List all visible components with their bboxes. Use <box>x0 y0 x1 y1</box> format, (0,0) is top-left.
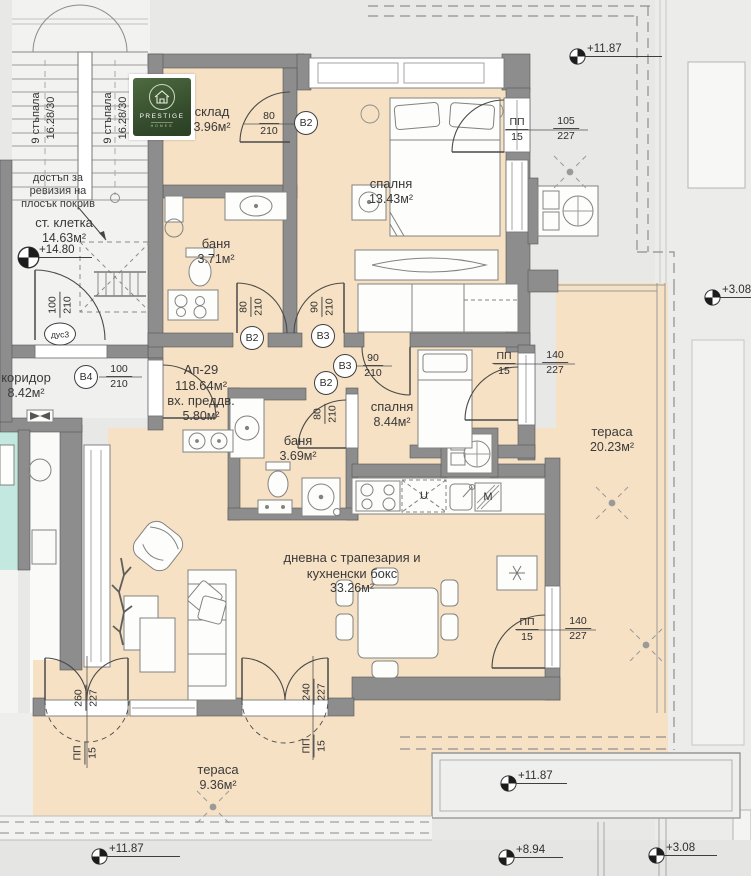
room-label-bath1: баня 3.71м² <box>197 236 234 267</box>
dim-corridor-door: 100 210 <box>106 363 132 390</box>
house-icon <box>149 84 175 110</box>
dim-type2: 15 <box>315 734 328 757</box>
level-value: +11.87 <box>587 43 622 55</box>
dim-terrace-door-right: 240 227 <box>300 679 327 705</box>
kitchen-counter <box>352 478 545 514</box>
dim-height: 227 <box>542 363 568 376</box>
dim-width: 240 <box>300 679 314 705</box>
door-tag-stair: дус3 <box>44 323 76 346</box>
dim-type2: 15 <box>505 130 528 143</box>
ac-outdoor-unit <box>538 186 598 236</box>
room-name: тераса <box>197 762 238 778</box>
dim-width: 90 <box>363 352 383 366</box>
apartment-area: 118.64м² <box>167 378 235 394</box>
fridge <box>497 556 537 590</box>
door-tag-bedroom2: В3 <box>333 354 357 378</box>
room-area: 3.69м² <box>279 449 316 464</box>
dim-living-terrace-pp: ПП 15 <box>515 616 538 643</box>
apartment-id: Ап-29 <box>167 362 235 378</box>
room-label-bath2: баня 3.69м² <box>279 433 316 464</box>
note-line: ревизия на <box>21 185 95 198</box>
dim-height: 210 <box>363 366 383 379</box>
dim-height: 210 <box>106 377 132 390</box>
room-area: 8.44м² <box>371 415 414 430</box>
room-label-living: дневна с трапезария и кухненски бокс 33.… <box>283 550 420 596</box>
room-area: 13.43м² <box>369 192 413 207</box>
room-name: кухненски бокс <box>283 566 420 582</box>
level-symbol-icon <box>91 848 108 865</box>
level-marker-terrace-mid: +11.87 <box>509 770 567 784</box>
level-symbol-icon <box>500 775 517 792</box>
level-value: +11.87 <box>518 770 553 782</box>
door-tag-sklad: В2 <box>294 111 318 135</box>
level-symbol-icon <box>569 48 586 65</box>
logo-sub-text: HOMES <box>151 122 174 128</box>
room-name: ст. клетка <box>35 215 93 231</box>
level-marker-bottom-right: +3.08 <box>657 842 717 856</box>
level-value: +14.80 <box>39 244 75 256</box>
dim-stair-door: 100 210 <box>46 292 73 318</box>
level-marker-stairwell: +14.80 <box>30 244 92 258</box>
dim-type: ПП <box>505 116 528 130</box>
room-area: 33.26м² <box>283 581 420 596</box>
level-value: +8.94 <box>516 844 545 856</box>
note-line: достъп за <box>21 172 95 185</box>
room-label-bedroom1: спалня 13.43м² <box>369 176 413 207</box>
dim-hall-door: 90 210 <box>308 297 335 317</box>
dim-width: 260 <box>72 685 86 711</box>
dim-height: 210 <box>323 297 336 317</box>
dim-height: 227 <box>87 685 100 711</box>
flight-size: 16.28/30 <box>116 92 131 143</box>
dim-type: ПП <box>300 734 314 757</box>
dim-height: 227 <box>565 629 591 642</box>
dim-type2: 15 <box>492 364 515 377</box>
dim-width: 140 <box>565 615 591 629</box>
level-symbol-icon <box>17 246 40 269</box>
level-marker-bottom-low: +8.94 <box>507 844 563 858</box>
room-name: баня <box>279 433 316 449</box>
room-name: вх. преддв. <box>167 393 235 409</box>
dim-width: 105 <box>553 115 579 129</box>
room-name: спалня <box>369 176 413 192</box>
level-value: +3.08 <box>722 284 751 296</box>
roof-access-note: достъп за ревизия на плосък покрив <box>21 172 95 212</box>
dishwasher-label: U <box>420 490 428 502</box>
dim-type2: 15 <box>86 741 99 764</box>
stair-flight-label-left: 9 стъпала 16.28/30 <box>29 92 59 143</box>
level-value: +3.08 <box>666 842 695 854</box>
dim-bedroom2-terrace-pp: ПП 15 <box>492 350 515 377</box>
level-symbol-icon <box>498 849 515 866</box>
dim-terrace-door-left-pp: ПП 15 <box>71 741 98 764</box>
dim-bedroom1-terrace: 105 227 <box>553 115 579 142</box>
level-value: +11.87 <box>109 843 144 855</box>
flight-count: 9 стъпала <box>29 92 44 143</box>
entry-cabinet <box>183 430 233 452</box>
room-name: коридор <box>1 370 51 386</box>
level-marker-right-edge: +3.08 <box>713 284 751 298</box>
room-name: тераса <box>590 424 634 440</box>
level-symbol-icon <box>704 289 721 306</box>
dim-width: 140 <box>542 349 568 363</box>
dim-sklad-door: 80 210 <box>259 110 279 137</box>
stair-flight-label-right: 9 стъпала 16.28/30 <box>101 92 131 143</box>
dim-height: 210 <box>252 297 265 317</box>
logo-brand-text: PRESTIGE <box>140 113 185 120</box>
dim-living-terrace: 140 227 <box>565 615 591 642</box>
room-area: 3.96м² <box>193 120 230 135</box>
dim-type: ПП <box>492 350 515 364</box>
room-label-terrace-bottom: тераса 9.36м² <box>197 762 238 793</box>
dim-height: 210 <box>61 292 74 318</box>
dim-type2: 15 <box>515 630 538 643</box>
dim-height: 227 <box>553 129 579 142</box>
room-name: спалня <box>371 399 414 415</box>
dim-height: 210 <box>259 124 279 137</box>
note-line: плосък покрив <box>21 198 95 211</box>
room-label-terrace-right: тераса 20.23м² <box>590 424 634 455</box>
dim-width: 80 <box>237 297 251 317</box>
room-area: 3.71м² <box>197 252 234 267</box>
door-tag-corridor: В4 <box>74 365 98 389</box>
room-area: 8.42м² <box>1 386 51 401</box>
dim-width: 90 <box>308 297 322 317</box>
sink-unit-label: М <box>483 491 492 503</box>
room-name: дневна с трапезария и <box>283 550 420 566</box>
dim-width: 100 <box>106 363 132 377</box>
dim-width: 100 <box>46 292 60 318</box>
room-name: склад <box>193 104 230 120</box>
room-label-entry: Ап-29 118.64м² вх. преддв. 5.80м² <box>167 362 235 424</box>
level-marker-bottom-left: +11.87 <box>100 843 180 857</box>
prestige-logo: PRESTIGE HOMES <box>129 74 195 140</box>
dim-height: 227 <box>315 679 328 705</box>
room-area: 5.80м² <box>167 409 235 424</box>
dim-bath1-door: 80 210 <box>237 297 264 317</box>
floor-plan: PRESTIGE HOMES склад 3.96м² спалня 13.43… <box>0 0 751 876</box>
flight-size: 16.28/30 <box>44 92 59 143</box>
dim-bath2-door: 80 210 <box>311 404 338 424</box>
prestige-logo-card: PRESTIGE HOMES <box>133 78 191 136</box>
bedroom2-furniture <box>418 350 472 448</box>
dim-terrace-door-right-pp: ПП 15 <box>300 734 327 757</box>
room-name: баня <box>197 236 234 252</box>
level-marker-roof-top: +11.87 <box>578 43 662 57</box>
room-label-corridor: коридор 8.42м² <box>1 370 51 401</box>
room-label-bedroom2: спалня 8.44м² <box>371 399 414 430</box>
door-tag-bath1: В2 <box>240 326 264 350</box>
door-tag-bath2: В2 <box>314 371 338 395</box>
room-area: 9.36м² <box>197 778 238 793</box>
dim-bedroom2-terrace: 140 227 <box>542 349 568 376</box>
dim-width: 80 <box>311 404 325 424</box>
room-label-sklad: склад 3.96м² <box>193 104 230 135</box>
dim-width: 80 <box>259 110 279 124</box>
room-area: 20.23м² <box>590 440 634 455</box>
dim-height: 210 <box>326 404 339 424</box>
flight-count: 9 стъпала <box>101 92 116 143</box>
level-symbol-icon <box>648 847 665 864</box>
dim-bedroom2-door: 90 210 <box>363 352 383 379</box>
door-tag-hall: В3 <box>311 324 335 348</box>
dim-terrace-door-left: 260 227 <box>72 685 99 711</box>
dim-type: ПП <box>515 616 538 630</box>
dim-type: ПП <box>71 741 85 764</box>
dim-bedroom1-terrace-pp: ПП 15 <box>505 116 528 143</box>
room-label-stairwell: ст. клетка 14.63м² <box>35 215 93 246</box>
